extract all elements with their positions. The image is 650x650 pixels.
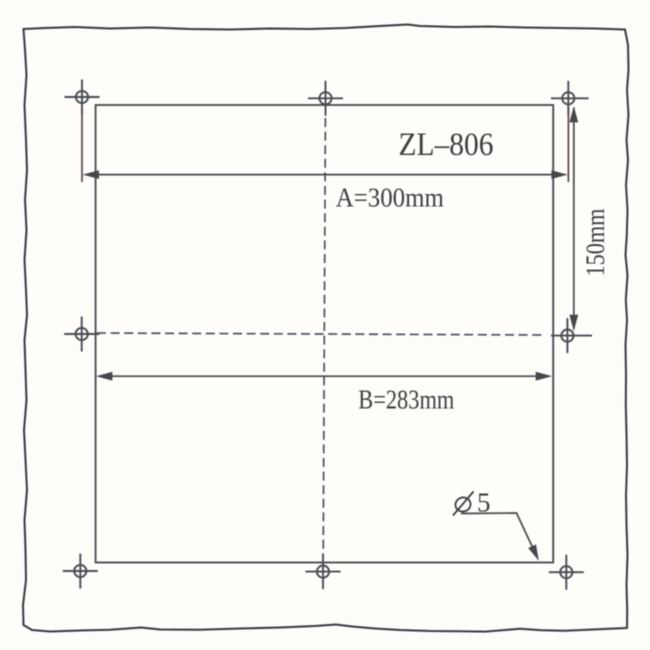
- svg-text:A=300mm: A=300mm: [336, 182, 444, 213]
- svg-text:5: 5: [477, 488, 491, 518]
- svg-text:ZL–806: ZL–806: [399, 127, 494, 163]
- svg-text:B=283mm: B=283mm: [358, 383, 454, 414]
- svg-text:150mm: 150mm: [581, 209, 610, 277]
